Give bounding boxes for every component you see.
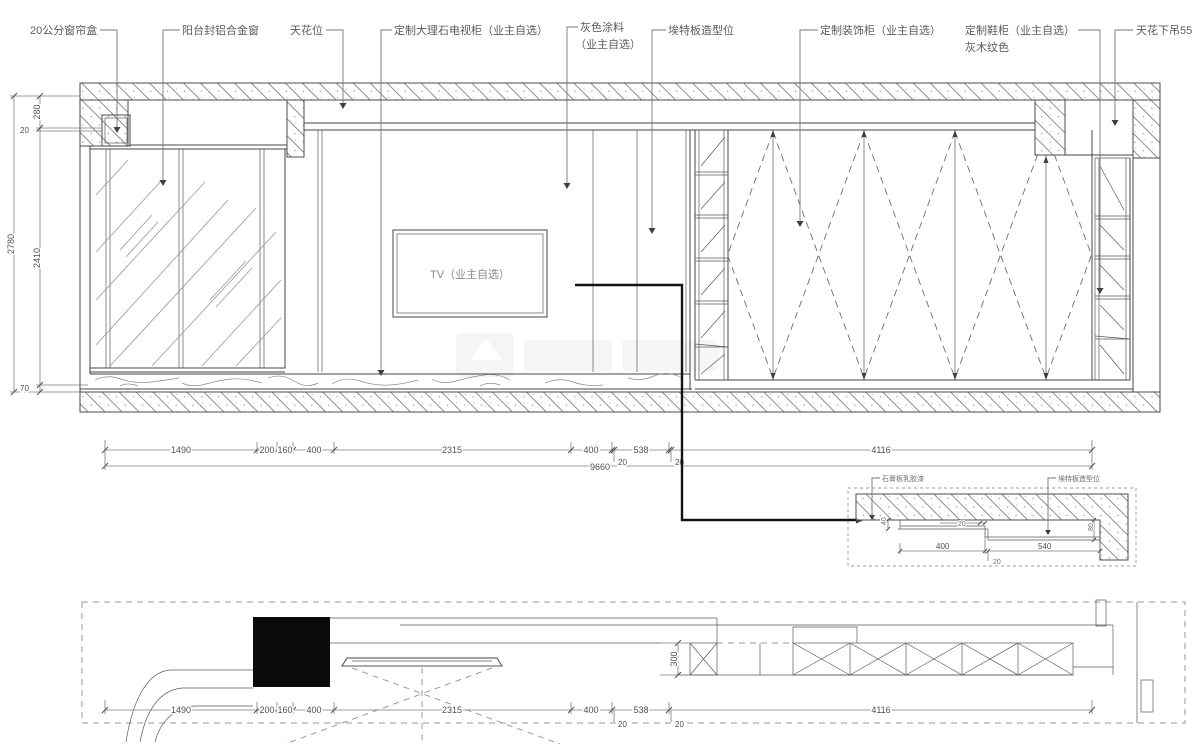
marble-base <box>80 373 692 389</box>
plan-dim-160: 160 <box>277 705 292 715</box>
label-balcony-window: 阳台封铝合金窗 <box>182 23 259 37</box>
dim-run-400b: 400 <box>583 445 598 455</box>
plan-dim-20a: 20 <box>618 720 627 729</box>
arrow-icon <box>378 370 385 376</box>
arrow-icon <box>564 183 571 189</box>
dim-run-400a: 400 <box>306 445 321 455</box>
detail-dim-20b: 20 <box>993 559 1001 566</box>
elevation-view: TV（业主自选） <box>80 83 1160 412</box>
balcony-window <box>90 149 285 372</box>
detail-dim-20a: 20 <box>958 521 966 528</box>
plan-dim-400b: 400 <box>583 705 598 715</box>
dim-run-200: 200 <box>259 445 274 455</box>
plan-view: 300 1490 200 160 400 <box>82 600 1185 744</box>
label-gray-paint-2: （业主自选） <box>575 38 641 51</box>
detail-dim-400: 400 <box>936 542 950 551</box>
label-curtain-box: 20公分窗帘盒 <box>30 23 97 37</box>
label-etex-board: 埃特板造型位 <box>668 23 734 37</box>
arrow-icon <box>1097 288 1104 294</box>
plan-dimension-row: 1490 200 160 400 2315 400 20 538 20 4116 <box>102 700 1095 729</box>
dim-total-9660: 9660 <box>590 462 610 472</box>
plan-dim-400a: 400 <box>306 705 321 715</box>
dim-run-1490: 1490 <box>171 445 191 455</box>
dim-run-2315: 2315 <box>442 445 462 455</box>
detail-dim-40: 40 <box>881 517 888 525</box>
ceiling-detail: 40 20 80 400 20 540 石膏板乳胶漆 埃特板造型位 <box>848 474 1136 566</box>
arrow-icon <box>649 228 656 234</box>
plan-depth-dim: 300 <box>660 640 690 678</box>
deco-cabinet-doors <box>695 130 1133 389</box>
watermark <box>456 333 718 377</box>
label-ceiling-pos: 天花位 <box>290 23 323 37</box>
ceiling-lines <box>130 123 1133 155</box>
plan-dim-200: 200 <box>259 705 274 715</box>
dim-280: 280 <box>32 104 42 119</box>
elevation-dimension-row: 1490 200 160 400 2315 400 20 538 20 4116… <box>102 440 1095 472</box>
elevation-plan-svg: TV（业主自选） <box>0 0 1200 744</box>
cad-drawing-sheet: TV（业主自选） <box>0 0 1200 744</box>
detail-dim-80: 80 <box>1088 523 1095 531</box>
plan-dim-2315: 2315 <box>442 705 462 715</box>
arrow-icon <box>1112 120 1119 126</box>
label-shoe-cabinet: 定制鞋柜（业主自选） <box>965 23 1075 37</box>
detail-label-etex: 埃特板造型位 <box>1058 474 1100 483</box>
dim-2410: 2410 <box>32 248 42 268</box>
arrow-icon <box>160 180 167 186</box>
dim-20: 20 <box>20 126 29 135</box>
label-gray-paint: 灰色涂料 <box>580 20 624 34</box>
detail-label-gypsum: 石膏板乳胶漆 <box>882 474 924 483</box>
label-ceiling-drop: 天花下吊55 <box>1136 24 1192 37</box>
detail-dim-540: 540 <box>1038 542 1052 551</box>
label-shoe-cabinet-2: 灰木纹色 <box>965 40 1009 54</box>
arrow-icon <box>1045 530 1051 535</box>
plan-dim-538: 538 <box>633 705 648 715</box>
dim-70: 70 <box>20 384 29 393</box>
dim-run-160: 160 <box>277 445 292 455</box>
tv-label: TV（业主自选） <box>430 268 510 281</box>
plan-dim-20b: 20 <box>675 720 684 729</box>
plan-tv <box>342 658 502 666</box>
dim-run-4116: 4116 <box>871 445 890 455</box>
callout-labels: 20公分窗帘盒 阳台封铝合金窗 天花位 定制大理石电视柜（业主自选） 灰色涂料 … <box>30 20 1192 376</box>
arrow-icon <box>340 103 347 109</box>
plan-dim-4116: 4116 <box>871 705 890 715</box>
arrow-icon <box>797 221 804 227</box>
dim-300: 300 <box>669 651 679 666</box>
plan-column-solid <box>253 617 330 687</box>
label-tv-cabinet: 定制大理石电视柜（业主自选） <box>394 23 548 37</box>
dim-run-538: 538 <box>633 445 648 455</box>
dim-total-height: 2780 <box>6 234 16 254</box>
label-deco-cabinet: 定制装饰柜（业主自选） <box>820 23 941 37</box>
glass-hatch-lines <box>96 160 281 366</box>
plan-dim-1490: 1490 <box>171 705 191 715</box>
plan-cabinets <box>690 643 1073 675</box>
dim-run-20a: 20 <box>618 458 627 467</box>
detail-ceiling-profile <box>898 520 1100 540</box>
